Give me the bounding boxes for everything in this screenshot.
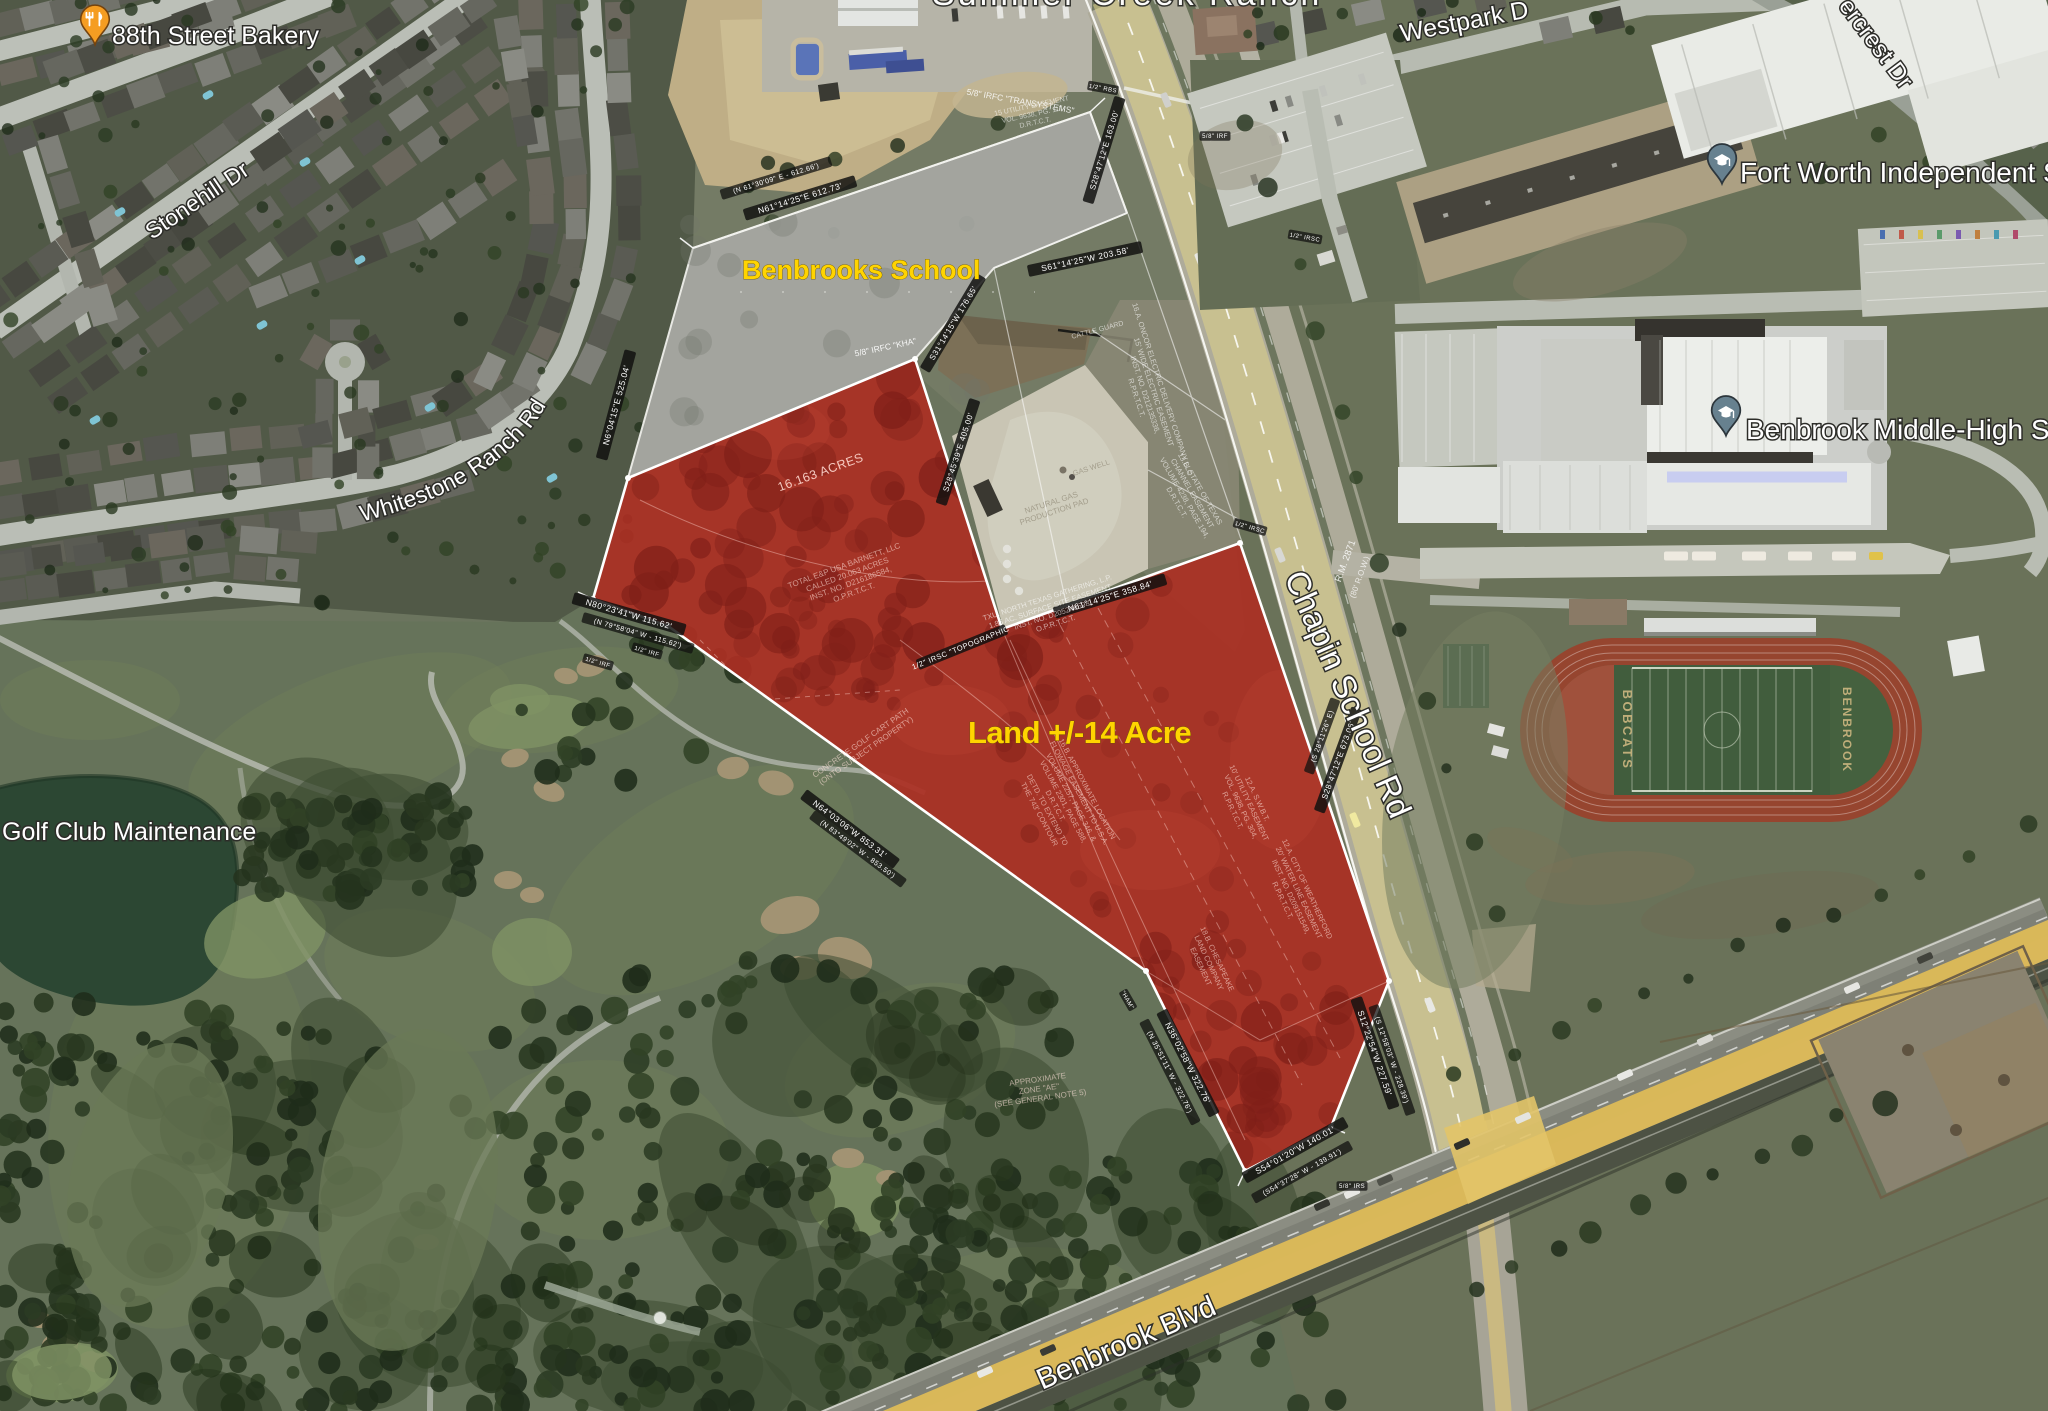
svg-text:Benbrooks School: Benbrooks School xyxy=(742,255,981,285)
svg-text:BENBROOK: BENBROOK xyxy=(1840,687,1854,773)
svg-text:Fort Worth Independent Sc: Fort Worth Independent Sc xyxy=(1740,157,2048,188)
svg-text:88th Street Bakery: 88th Street Bakery xyxy=(112,22,320,50)
svg-text:Summer Creek Ranch: Summer Creek Ranch xyxy=(932,0,1322,13)
svg-text:Benbrook Middle-High Sc: Benbrook Middle-High Sc xyxy=(1746,414,2048,445)
svg-text:Land +/-14 Acre: Land +/-14 Acre xyxy=(968,715,1191,750)
svg-text:5/8" IRF: 5/8" IRF xyxy=(1202,134,1228,140)
svg-text:5/8" IRS: 5/8" IRS xyxy=(1339,1184,1365,1190)
svg-text:Golf Club Maintenance: Golf Club Maintenance xyxy=(2,818,256,846)
svg-text:BOBCATS: BOBCATS xyxy=(1620,690,1635,771)
